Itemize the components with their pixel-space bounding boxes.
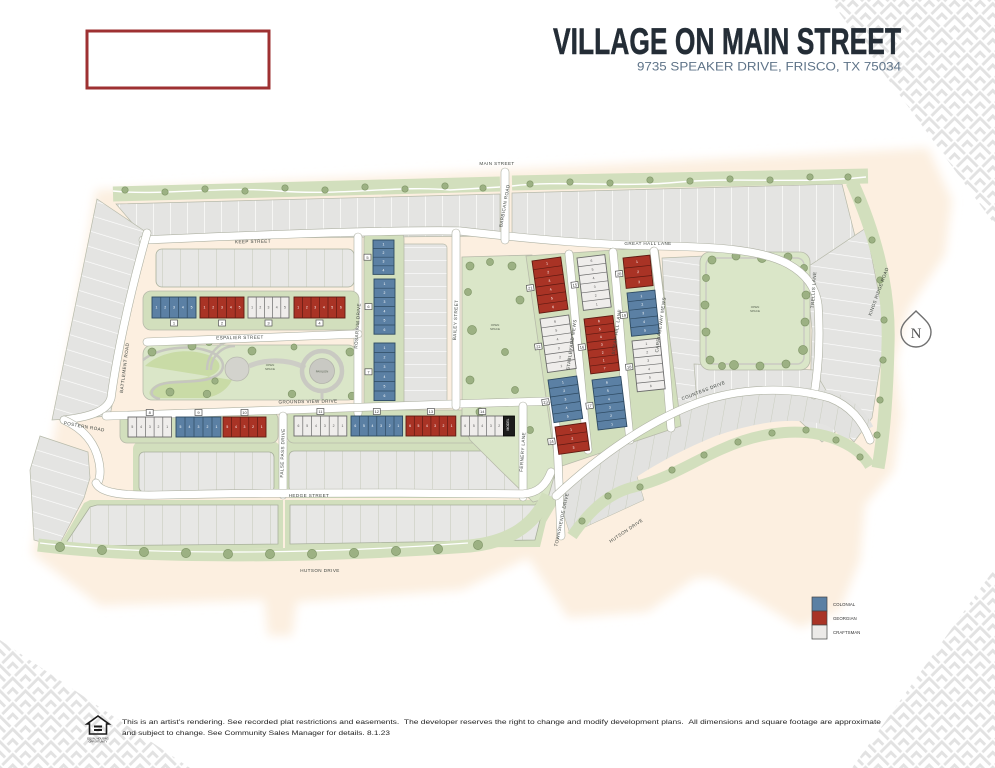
svg-text:4: 4 (140, 425, 142, 429)
svg-text:KEEP STREET: KEEP STREET (235, 239, 271, 245)
svg-text:4: 4 (182, 306, 184, 310)
svg-text:4: 4 (189, 425, 191, 429)
svg-text:1: 1 (203, 306, 205, 310)
svg-text:14: 14 (480, 409, 485, 414)
svg-text:5: 5 (239, 306, 241, 310)
svg-text:3: 3 (149, 425, 151, 429)
svg-text:6: 6 (409, 424, 411, 428)
svg-text:9735 SPEAKER DRIVE, FRISCO, TX: 9735 SPEAKER DRIVE, FRISCO, TX 75034 (637, 60, 901, 74)
svg-text:13: 13 (429, 409, 434, 414)
svg-text:6: 6 (464, 424, 466, 428)
svg-text:2: 2 (333, 424, 335, 428)
svg-text:2: 2 (389, 424, 391, 428)
svg-text:3: 3 (490, 424, 492, 428)
svg-text:1: 1 (397, 424, 399, 428)
svg-text:4: 4 (384, 375, 386, 379)
svg-text:6: 6 (297, 424, 299, 428)
svg-text:5: 5 (384, 319, 386, 323)
svg-text:ESPALIER STREET: ESPALIER STREET (216, 335, 264, 341)
svg-text:MODEL: MODEL (506, 418, 510, 430)
svg-text:10: 10 (242, 410, 247, 415)
svg-text:4: 4 (384, 309, 386, 313)
svg-text:GEORGIAN: GEORGIAN (833, 616, 857, 621)
svg-text:1: 1 (166, 425, 168, 429)
svg-text:4: 4 (372, 424, 374, 428)
svg-text:1: 1 (451, 424, 453, 428)
svg-text:VILLAGE ON MAIN STREET: VILLAGE ON MAIN STREET (553, 21, 901, 62)
svg-text:OPPORTUNITY: OPPORTUNITY (89, 739, 108, 743)
svg-text:CRAFTSMAN: CRAFTSMAN (833, 630, 860, 635)
svg-text:3: 3 (314, 306, 316, 310)
svg-text:2: 2 (498, 424, 500, 428)
svg-text:5: 5 (191, 306, 193, 310)
svg-text:1: 1 (384, 282, 386, 286)
svg-text:1: 1 (251, 306, 253, 310)
svg-text:HUTSON DRIVE: HUTSON DRIVE (300, 568, 340, 573)
svg-text:4: 4 (276, 306, 278, 310)
svg-text:This is an artist’s rendering.: This is an artist’s rendering. See recor… (122, 719, 882, 726)
svg-text:SPACE: SPACE (490, 327, 500, 331)
svg-text:PAVILION: PAVILION (316, 370, 329, 374)
svg-text:2: 2 (212, 306, 214, 310)
svg-text:2: 2 (384, 291, 386, 295)
svg-text:3: 3 (383, 260, 385, 264)
svg-text:4: 4 (426, 424, 428, 428)
svg-text:SPACE: SPACE (265, 367, 275, 371)
svg-text:4: 4 (235, 425, 237, 429)
svg-text:5: 5 (226, 425, 228, 429)
svg-text:and subject to change. See Com: and subject to change. See Community Sal… (122, 730, 391, 737)
svg-text:GREAT HALL LANE: GREAT HALL LANE (624, 241, 671, 246)
svg-text:5: 5 (284, 306, 286, 310)
svg-text:6: 6 (340, 306, 342, 310)
svg-text:1: 1 (341, 424, 343, 428)
svg-text:N: N (911, 326, 922, 342)
svg-text:5: 5 (384, 384, 386, 388)
svg-text:6: 6 (384, 394, 386, 398)
svg-text:3: 3 (244, 425, 246, 429)
svg-text:5: 5 (417, 424, 419, 428)
svg-text:3: 3 (380, 424, 382, 428)
svg-text:2: 2 (157, 425, 159, 429)
svg-text:4: 4 (323, 306, 325, 310)
svg-text:2: 2 (252, 425, 254, 429)
svg-text:SPACE: SPACE (750, 309, 760, 313)
svg-text:4: 4 (481, 424, 483, 428)
svg-text:1: 1 (384, 346, 386, 350)
svg-text:4: 4 (230, 306, 232, 310)
svg-text:5: 5 (180, 425, 182, 429)
svg-text:6: 6 (354, 424, 356, 428)
svg-text:HEDGE STREET: HEDGE STREET (289, 493, 330, 498)
svg-text:3: 3 (324, 424, 326, 428)
svg-text:5: 5 (331, 306, 333, 310)
svg-text:5: 5 (473, 424, 475, 428)
svg-text:12: 12 (375, 409, 380, 414)
svg-text:MAIN STREET: MAIN STREET (479, 161, 514, 166)
svg-text:3: 3 (198, 425, 200, 429)
svg-text:5: 5 (131, 425, 133, 429)
svg-text:3: 3 (434, 424, 436, 428)
svg-text:1: 1 (216, 425, 218, 429)
svg-text:2: 2 (442, 424, 444, 428)
svg-text:2: 2 (384, 356, 386, 360)
svg-text:2: 2 (383, 251, 385, 255)
svg-text:1: 1 (155, 306, 157, 310)
svg-text:3: 3 (221, 306, 223, 310)
svg-text:4: 4 (383, 268, 385, 272)
svg-text:2: 2 (259, 306, 261, 310)
svg-text:3: 3 (384, 300, 386, 304)
svg-text:6: 6 (384, 328, 386, 332)
svg-text:1: 1 (261, 425, 263, 429)
svg-text:2: 2 (306, 306, 308, 310)
svg-text:COLONIAL: COLONIAL (833, 602, 856, 607)
svg-text:5: 5 (306, 424, 308, 428)
svg-text:GROUNDS VIEW DRIVE: GROUNDS VIEW DRIVE (278, 398, 337, 404)
svg-text:3: 3 (173, 306, 175, 310)
svg-text:5: 5 (363, 424, 365, 428)
svg-text:4: 4 (315, 424, 317, 428)
svg-text:3: 3 (268, 306, 270, 310)
svg-text:1: 1 (383, 243, 385, 247)
svg-text:2: 2 (207, 425, 209, 429)
svg-text:1: 1 (297, 306, 299, 310)
svg-text:3: 3 (384, 365, 386, 369)
svg-text:2: 2 (164, 306, 166, 310)
